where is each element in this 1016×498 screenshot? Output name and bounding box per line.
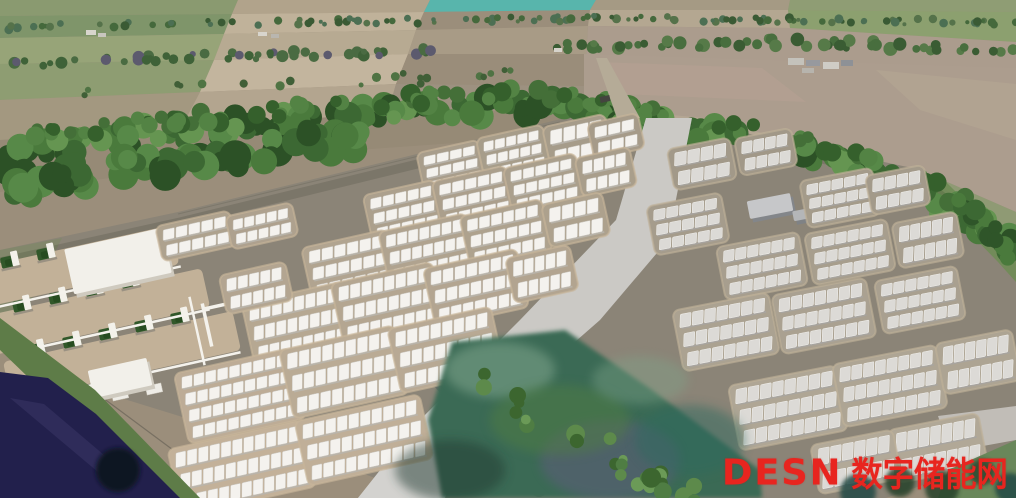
desn-watermark: DESN 数字储能网 [722, 447, 1008, 496]
desn-logo-text: DESN [722, 453, 842, 493]
desn-site-name: 数字储能网 [852, 447, 1008, 496]
aerial-render: DESN 数字储能网 [0, 0, 1016, 498]
scene-svg [0, 0, 1016, 498]
